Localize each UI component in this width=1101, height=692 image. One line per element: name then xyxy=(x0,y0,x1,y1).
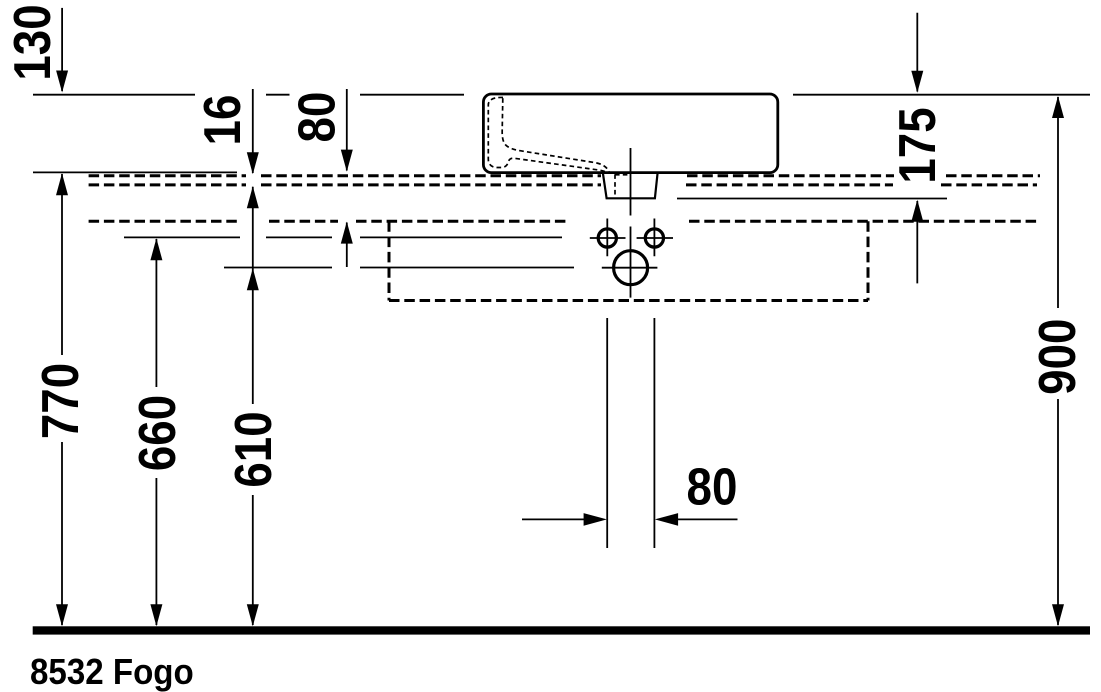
svg-text:770: 770 xyxy=(32,363,89,439)
svg-text:660: 660 xyxy=(129,395,186,471)
svg-text:80: 80 xyxy=(687,459,738,516)
svg-text:610: 610 xyxy=(225,411,282,487)
svg-text:80: 80 xyxy=(289,92,346,143)
svg-text:900: 900 xyxy=(1029,319,1086,395)
svg-text:130: 130 xyxy=(4,4,61,80)
svg-text:16: 16 xyxy=(194,95,251,146)
svg-text:8532 Fogo: 8532 Fogo xyxy=(30,653,194,692)
svg-text:175: 175 xyxy=(889,107,946,183)
